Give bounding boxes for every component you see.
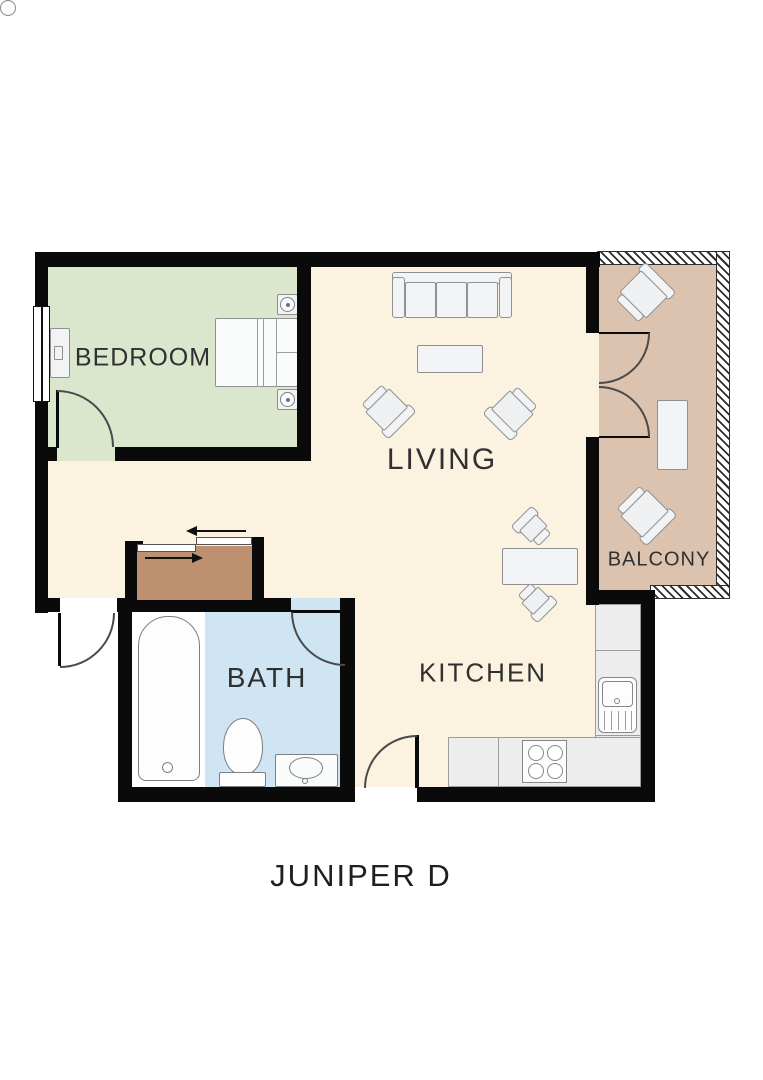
balcony-railing-right [716, 251, 730, 599]
kitchen-sink-faucet [614, 698, 620, 704]
counter-divider-3 [498, 737, 499, 787]
balcony-railing-top [597, 251, 730, 265]
lamp-icon-bottom [280, 392, 295, 407]
sofa-cushion-1 [405, 282, 436, 318]
wall-bath-left [118, 598, 132, 802]
balcony-railing-bottom [650, 585, 730, 599]
stove-burner [547, 763, 563, 779]
stove-burner [547, 745, 563, 761]
coffee-table-icon [417, 345, 483, 373]
wall-living-bottom-stub [35, 598, 60, 612]
bath-label: BATH [227, 662, 308, 694]
wall-bottom-kitchen [417, 787, 655, 802]
balcony-doorway-floor [586, 333, 599, 437]
balcony-table-icon [657, 400, 688, 470]
sliding-door-arrowhead-left [186, 526, 197, 536]
bath-sink-faucet [302, 778, 308, 784]
sink-drain-line [611, 711, 612, 730]
wall-bath-top [117, 598, 291, 612]
sink-drain-line [625, 711, 626, 730]
bathtub-icon [138, 616, 200, 781]
wall-closet-right [252, 537, 264, 604]
wall-top [35, 252, 600, 267]
floor-plan-page: { "title": "JUNIPER D", "rooms": { "bedr… [0, 0, 763, 1080]
lamp-icon-top [280, 297, 295, 312]
stove-burner [528, 763, 544, 779]
sink-drain-line [631, 711, 632, 730]
bedroom-label: BEDROOM [75, 344, 211, 373]
living-label: LIVING [387, 443, 497, 477]
sliding-door-arrow-right [145, 557, 193, 559]
sofa-cushion-3 [467, 282, 498, 318]
sofa-arm-right [499, 277, 512, 318]
sliding-door-arrowhead-right [192, 553, 203, 563]
floor-plan: BEDROOM LIVING BALCONY BATH KITCHEN JUNI… [0, 0, 763, 1080]
wall-kitchen-right [641, 590, 655, 802]
wall-bedroom-divider [297, 252, 311, 461]
kitchen-label: KITCHEN [419, 658, 547, 689]
bath-sink-basin-icon [289, 757, 323, 779]
wall-living-right-lower [586, 437, 599, 605]
wall-bottom-bath [118, 787, 355, 802]
wall-bedroom-bottom-right [115, 447, 311, 461]
bathtub-drain [162, 762, 173, 773]
bed-pillow-split [276, 352, 298, 353]
balcony-label: BALCONY [608, 549, 711, 572]
closet-sliding-panel-left [137, 544, 196, 552]
dining-table-icon [502, 548, 578, 585]
closet-sliding-panel-right [196, 537, 252, 545]
sofa-cushion-2 [436, 282, 467, 318]
counter-divider-2 [595, 735, 641, 736]
counter-divider-1 [595, 650, 641, 651]
bedroom-doorway-floor [57, 447, 115, 461]
side-door-arc [60, 613, 115, 668]
sofa-arm-left [392, 277, 405, 318]
wall-bedroom-bottom-left [35, 447, 57, 461]
bedroom-window-mullion [41, 306, 43, 402]
wall-living-right-upper [586, 252, 599, 333]
plan-title: JUNIPER D [270, 858, 452, 894]
stove-burner [0, 0, 16, 16]
toilet-tank [219, 772, 266, 787]
sink-drain-line [618, 711, 619, 730]
bed-blanket-line-2 [263, 318, 264, 387]
dresser-knob [54, 346, 63, 360]
sliding-door-arrow-left [196, 530, 246, 532]
toilet-icon [223, 718, 263, 775]
sink-drain-line [604, 711, 605, 730]
stove-burner [528, 745, 544, 761]
bed-blanket-line [257, 318, 258, 387]
